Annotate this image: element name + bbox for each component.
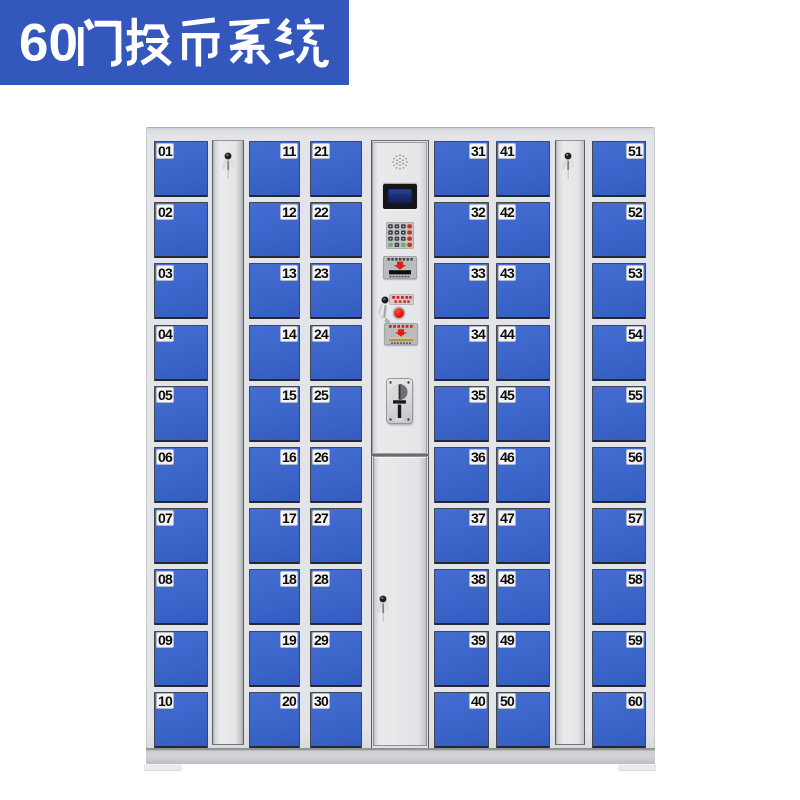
svg-text:49: 49 (500, 633, 515, 647)
svg-text:23: 23 (314, 266, 329, 280)
svg-text:05: 05 (158, 388, 173, 402)
svg-text:45: 45 (500, 388, 515, 402)
svg-text:03: 03 (158, 266, 173, 280)
svg-text:34: 34 (471, 327, 486, 341)
svg-text:04: 04 (158, 327, 173, 341)
svg-text:16: 16 (282, 450, 297, 464)
svg-text:60: 60 (19, 14, 78, 73)
svg-text:39: 39 (471, 633, 486, 647)
svg-text:47: 47 (500, 511, 515, 525)
svg-text:40: 40 (471, 694, 486, 708)
svg-text:53: 53 (628, 266, 643, 280)
svg-text:08: 08 (158, 572, 173, 586)
svg-text:48: 48 (500, 572, 515, 586)
svg-text:06: 06 (158, 450, 173, 464)
svg-text:51: 51 (628, 144, 643, 158)
svg-text:26: 26 (314, 450, 329, 464)
svg-text:21: 21 (314, 144, 329, 158)
svg-text:41: 41 (500, 144, 515, 158)
svg-text:57: 57 (628, 511, 643, 525)
svg-text:25: 25 (314, 388, 329, 402)
svg-text:55: 55 (628, 388, 643, 402)
svg-text:58: 58 (628, 572, 643, 586)
svg-text:50: 50 (500, 694, 515, 708)
svg-text:37: 37 (471, 511, 486, 525)
svg-text:17: 17 (282, 511, 297, 525)
svg-text:18: 18 (282, 572, 297, 586)
svg-text:33: 33 (471, 266, 486, 280)
svg-text:28: 28 (314, 572, 329, 586)
svg-text:19: 19 (282, 633, 297, 647)
svg-text:13: 13 (282, 266, 297, 280)
svg-text:01: 01 (158, 144, 173, 158)
svg-text:15: 15 (282, 388, 297, 402)
svg-text:22: 22 (314, 205, 329, 219)
svg-text:02: 02 (158, 205, 173, 219)
svg-text:30: 30 (314, 694, 329, 708)
svg-text:59: 59 (628, 633, 643, 647)
svg-text:60: 60 (628, 694, 643, 708)
svg-text:07: 07 (158, 511, 173, 525)
svg-text:24: 24 (314, 327, 329, 341)
svg-text:43: 43 (500, 266, 515, 280)
svg-text:29: 29 (314, 633, 329, 647)
svg-text:32: 32 (471, 205, 486, 219)
svg-text:27: 27 (314, 511, 329, 525)
svg-text:42: 42 (500, 205, 515, 219)
svg-text:44: 44 (500, 327, 515, 341)
svg-text:35: 35 (471, 388, 486, 402)
svg-text:10: 10 (158, 694, 173, 708)
svg-text:31: 31 (471, 144, 486, 158)
svg-text:11: 11 (282, 144, 296, 158)
svg-text:38: 38 (471, 572, 486, 586)
svg-text:12: 12 (282, 205, 297, 219)
svg-text:52: 52 (628, 205, 643, 219)
svg-text:09: 09 (158, 633, 173, 647)
svg-text:20: 20 (282, 694, 297, 708)
svg-text:14: 14 (282, 327, 297, 341)
svg-text:36: 36 (471, 450, 486, 464)
svg-text:46: 46 (500, 450, 515, 464)
svg-text:56: 56 (628, 450, 643, 464)
svg-text:54: 54 (628, 327, 643, 341)
